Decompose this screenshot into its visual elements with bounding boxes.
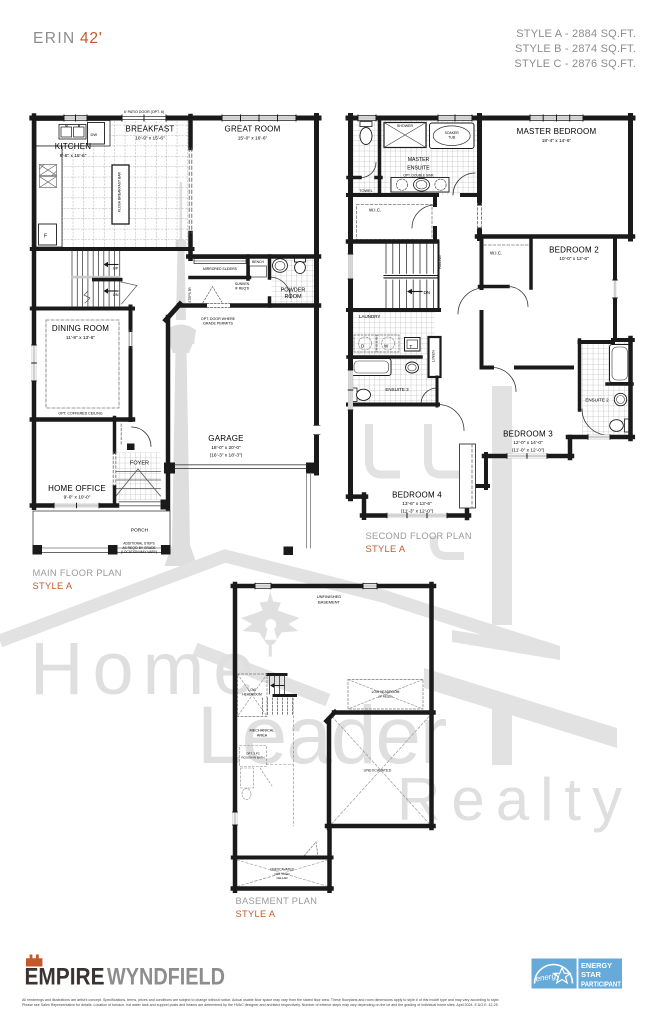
svg-text:FOYER: FOYER xyxy=(130,461,149,467)
svg-text:UNFINISHED: UNFINISHED xyxy=(317,594,342,599)
svg-text:(16'-3" x 18'-3"): (16'-3" x 18'-3") xyxy=(210,453,243,459)
svg-text:SOAKER: SOAKER xyxy=(445,131,460,135)
svg-text:LAUNDRY: LAUNDRY xyxy=(359,314,380,319)
svg-text:ENSUITE 2: ENSUITE 2 xyxy=(585,398,609,403)
svg-text:STYLE A: STYLE A xyxy=(236,909,276,919)
svg-text:BREAKFAST: BREAKFAST xyxy=(126,125,175,134)
svg-text:(LOCATION MAY VARY): (LOCATION MAY VARY) xyxy=(121,550,157,554)
svg-text:18'-0" x 20'-0": 18'-0" x 20'-0" xyxy=(211,445,241,451)
svg-text:DINING ROOM: DINING ROOM xyxy=(52,324,109,333)
svg-text:All renderings and illustratio: All renderings and illustrations are art… xyxy=(22,998,499,1002)
svg-text:MIRRORED SLIDERS: MIRRORED SLIDERS xyxy=(203,267,238,271)
svg-text:42': 42' xyxy=(80,30,103,47)
svg-text:T: T xyxy=(410,344,413,349)
svg-text:F: F xyxy=(44,234,47,240)
svg-text:13'-6" x 13'-6": 13'-6" x 13'-6" xyxy=(402,501,432,507)
svg-text:STYLE B - 2874 SQ.FT.: STYLE B - 2874 SQ.FT. xyxy=(515,43,636,55)
svg-text:KITCHEN: KITCHEN xyxy=(55,142,92,151)
svg-text:CELLAR: CELLAR xyxy=(276,876,287,880)
svg-text:TOWEL: TOWEL xyxy=(359,189,372,193)
svg-text:ROUGH-IN BATH: ROUGH-IN BATH xyxy=(242,756,265,760)
svg-text:UNEXCAVATED: UNEXCAVATED xyxy=(270,868,295,872)
svg-text:EMPIRE: EMPIRE xyxy=(25,964,105,991)
svg-text:SHOWER: SHOWER xyxy=(397,124,414,128)
svg-text:OPT. DOOR WHERE: OPT. DOOR WHERE xyxy=(201,317,236,321)
svg-text:GRADE PERMITS: GRADE PERMITS xyxy=(203,322,233,326)
svg-text:STYLE C - 2876 SQ.FT.: STYLE C - 2876 SQ.FT. xyxy=(514,58,636,70)
svg-text:8'-6" x 15'-6": 8'-6" x 15'-6" xyxy=(60,153,87,159)
svg-text:HEADROOM: HEADROOM xyxy=(242,693,262,697)
svg-text:ERIN: ERIN xyxy=(33,30,76,47)
svg-text:GARAGE: GARAGE xyxy=(208,434,243,443)
svg-text:SUNKEN: SUNKEN xyxy=(235,282,250,286)
svg-text:LOW: LOW xyxy=(248,688,256,692)
svg-text:6' PATIO DOOR (OPT. 6): 6' PATIO DOOR (OPT. 6) xyxy=(124,110,164,114)
svg-text:GREAT ROOM: GREAT ROOM xyxy=(225,125,281,134)
svg-text:DW: DW xyxy=(91,132,98,137)
svg-text:MASTER BEDROOM: MASTER BEDROOM xyxy=(517,127,597,136)
svg-text:ROOM: ROOM xyxy=(284,294,302,300)
svg-text:AREA: AREA xyxy=(257,734,268,738)
svg-text:(IF REQ'D): (IF REQ'D) xyxy=(378,695,392,699)
svg-text:ENSUITE 3: ENSUITE 3 xyxy=(385,387,409,392)
svg-text:OPT. DOUBLE SINK: OPT. DOUBLE SINK xyxy=(403,174,434,178)
svg-text:STAR: STAR xyxy=(581,970,602,979)
svg-text:UNEXCAVATED: UNEXCAVATED xyxy=(364,769,392,773)
svg-text:STEPS 3R: STEPS 3R xyxy=(188,287,192,303)
svg-text:MASTER: MASTER xyxy=(408,157,430,163)
svg-text:ENERGY: ENERGY xyxy=(581,961,612,970)
svg-text:LOW HEADROOM: LOW HEADROOM xyxy=(372,690,400,694)
svg-text:W.I.C.: W.I.C. xyxy=(369,208,381,213)
svg-text:11'-8" x 13'-6": 11'-8" x 13'-6" xyxy=(66,335,95,341)
svg-text:18'-4" x 14'-6": 18'-4" x 14'-6" xyxy=(542,138,572,144)
svg-text:12'-0" x 14'-0": 12'-0" x 14'-0" xyxy=(513,440,543,446)
svg-text:9'-0" x 10'-0": 9'-0" x 10'-0" xyxy=(64,495,91,501)
svg-text:BEDROOM 2: BEDROOM 2 xyxy=(549,246,599,255)
svg-text:OPT. COFFERED CEILING: OPT. COFFERED CEILING xyxy=(58,412,102,416)
svg-text:FLUSH BREAKFAST BAR: FLUSH BREAKFAST BAR xyxy=(118,172,122,212)
svg-text:WYNDFIELD: WYNDFIELD xyxy=(107,964,225,991)
svg-text:W.I.C.: W.I.C. xyxy=(490,251,502,256)
svg-text:POWDER: POWDER xyxy=(281,288,306,294)
svg-text:DN: DN xyxy=(424,290,431,295)
svg-text:ENSUITE: ENSUITE xyxy=(407,166,430,172)
svg-text:BASEMENT: BASEMENT xyxy=(318,600,341,605)
svg-text:STYLE A - 2884 SQ.FT.: STYLE A - 2884 SQ.FT. xyxy=(516,28,636,40)
svg-text:HOME OFFICE: HOME OFFICE xyxy=(48,484,106,493)
svg-text:PARTICIPANT: PARTICIPANT xyxy=(581,979,621,988)
svg-text:STYLE A: STYLE A xyxy=(33,581,73,591)
svg-text:15'-0" x 16'-6": 15'-0" x 16'-6" xyxy=(238,136,268,142)
svg-text:UP: UP xyxy=(113,267,119,271)
svg-text:Please see Sales Representativ: Please see Sales Representative for deta… xyxy=(22,1003,498,1007)
svg-text:BASEMENT PLAN: BASEMENT PLAN xyxy=(236,896,318,906)
svg-text:(11'-0" x 12'-0"): (11'-0" x 12'-0") xyxy=(512,447,545,453)
svg-text:TUB: TUB xyxy=(448,136,456,140)
svg-text:SECOND FLOOR PLAN: SECOND FLOOR PLAN xyxy=(366,531,472,541)
svg-text:MAIN FLOOR PLAN: MAIN FLOOR PLAN xyxy=(33,568,122,578)
svg-text:LINEN: LINEN xyxy=(431,350,436,362)
svg-text:STYLE A: STYLE A xyxy=(366,544,406,554)
svg-text:DN: DN xyxy=(113,293,119,297)
svg-text:PORCH: PORCH xyxy=(131,528,149,534)
svg-text:BENCH: BENCH xyxy=(252,260,264,264)
svg-text:IF REQ'D: IF REQ'D xyxy=(235,287,250,291)
svg-text:10'-9" x 15'-6": 10'-9" x 15'-6" xyxy=(135,136,165,142)
svg-text:BEDROOM 3: BEDROOM 3 xyxy=(503,430,553,439)
svg-text:10'-0" x 12'-6": 10'-0" x 12'-6" xyxy=(559,256,589,262)
svg-text:BEDROOM 4: BEDROOM 4 xyxy=(392,491,442,500)
svg-text:MECHANICAL: MECHANICAL xyxy=(250,729,275,733)
